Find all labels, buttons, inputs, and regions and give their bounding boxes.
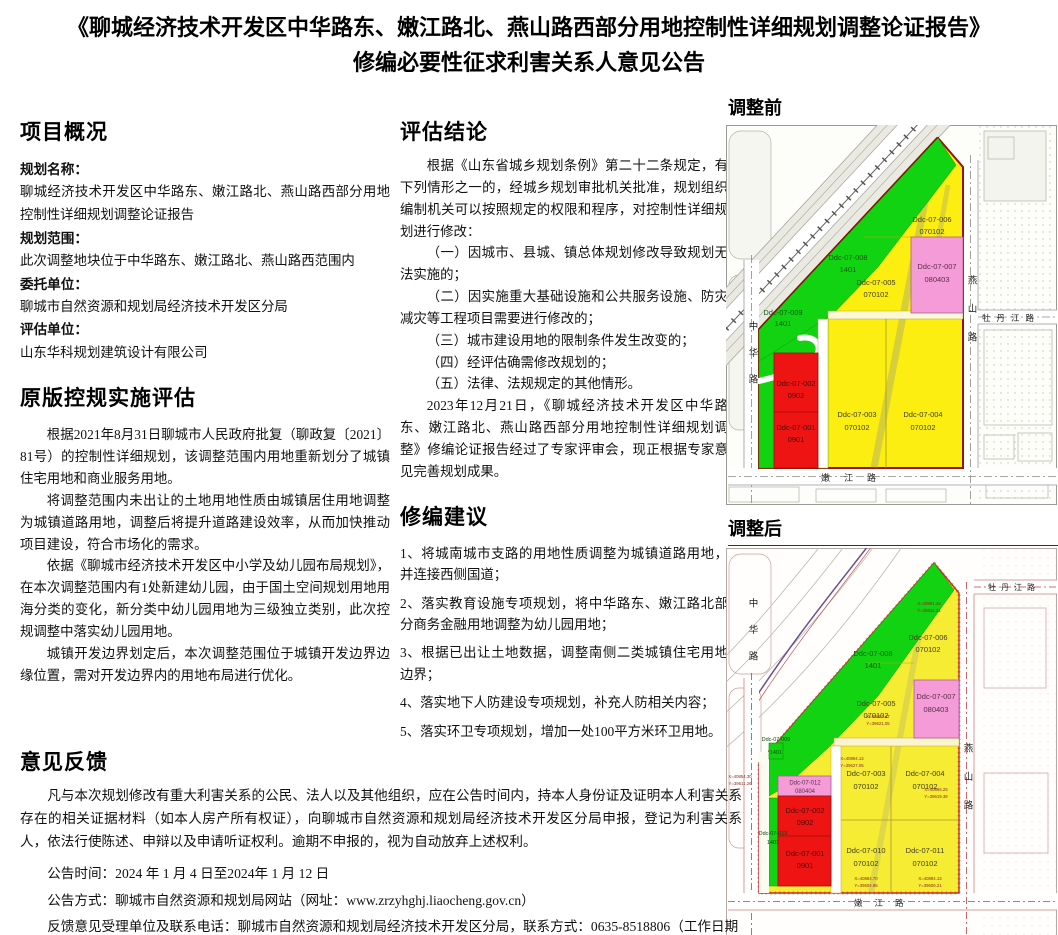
parcel-use: 070102 — [844, 423, 869, 432]
parcel-code: Ddc-07-004 — [903, 410, 942, 419]
field-label-plan-scope: 规划范围： — [20, 227, 390, 250]
feedback-heading: 意见反馈 — [20, 746, 742, 776]
coord-label: X=40865.25 — [924, 787, 948, 792]
conclusion-paragraph: 2023年12月21日，《聊城经济技术开发区中华路东、嫩江路北、燕山路西部分用地… — [400, 395, 728, 482]
road-label-nenjiang: 嫩江路 — [821, 472, 890, 483]
parcel-code: Ddc-07-002 — [776, 379, 815, 388]
notice-page: 《聊城经济技术开发区中华路东、嫩江路北、燕山路西部分用地控制性详细规划调整论证报… — [0, 0, 1058, 935]
notice-method-line: 公告方式：聊城市自然资源和规划局网站（网址：www.zrzyhghj.liaoc… — [20, 890, 742, 912]
notice-title: 《聊城经济技术开发区中华路东、嫩江路北、燕山路西部分用地控制性详细规划调整论证报… — [8, 10, 1050, 80]
section-conclusion: 评估结论 根据《山东省城乡规划条例》第二十二条规定，有下列情形之一的，经城乡规划… — [400, 116, 728, 749]
parcel-use: 0901 — [788, 435, 805, 444]
suggestion-item: 5、落实环卫专项规划，增加一处100平方米环卫用地。 — [400, 721, 728, 742]
coord-label: Y=39627.05 — [840, 763, 864, 768]
road-label-yanshan: 燕山路 — [962, 742, 974, 828]
parcel-use: 0901 — [797, 861, 814, 870]
section-maps: 调整前 — [726, 94, 1058, 935]
field-label-assessor: 评估单位： — [20, 318, 390, 341]
parcel-use: 080403 — [923, 705, 948, 714]
coord-label: X=40894.13 — [918, 876, 942, 881]
parcel-code: Ddc-07-002 — [785, 806, 824, 815]
original-assessment-paragraph: 城镇开发边界划定后，本次调整范围位于城镇开发边界边缘位置，需对开发边界内的用地布… — [20, 643, 390, 687]
road-label-nenjiang: 嫩江路 — [854, 898, 916, 908]
field-value-assessor: 山东华科规划建筑设计有限公司 — [20, 342, 390, 365]
map-before: Ddc-07-006 070102 Ddc-07-008 1401 Ddc-07… — [726, 125, 1058, 505]
original-assessment-paragraph: 根据2021年8月31日聊城市人民政府批复（聊政复〔2021〕81号）的控制性详… — [20, 424, 390, 490]
notice-period-line: 公告时间：2024 年 1 月 4 日至2024年 1 月 12 日 — [20, 863, 742, 885]
parcel-code: Ddc-07-010 — [846, 846, 885, 855]
parcel-use: 080403 — [924, 275, 949, 284]
map-before-canvas: Ddc-07-006 070102 Ddc-07-008 1401 Ddc-07… — [726, 125, 1057, 505]
project-overview-heading: 项目概况 — [20, 116, 390, 146]
feedback-paragraph: 凡与本次规划修改有重大利害关系的公民、法人以及其他组织，应在公告时间内，持本人身… — [20, 785, 742, 853]
parcel-code: Ddc-07-005 — [856, 278, 895, 287]
conclusion-paragraph: （四）经评估确需修改规划的； — [400, 352, 728, 374]
parcel-code: Ddc-07-001 — [776, 423, 815, 432]
conclusion-paragraph: 根据《山东省城乡规划条例》第二十二条规定，有下列情形之一的，经城乡规划审批机关批… — [400, 155, 728, 242]
parcel-use: 070102 — [910, 423, 935, 432]
coord-label: X=40887.47 — [866, 714, 890, 719]
parcel-use: 070102 — [915, 645, 940, 654]
edge-road-sliver — [759, 752, 769, 893]
parcel-use: 1401 — [865, 661, 882, 670]
map-before-label: 调整前 — [728, 94, 1058, 120]
suggestion-item: 4、落实地下人防建设专项规划，补充人防相关内容； — [400, 692, 728, 713]
parcel-code: Ddc-07-009 — [763, 308, 802, 317]
road-label-mudanjiang: 牡丹江路 — [982, 313, 1040, 323]
parcel-code: Ddc-07-009 — [762, 737, 791, 743]
title-line1: 《聊城经济技术开发区中华路东、嫩江路北、燕山路西部分用地控制性详细规划调整论证报… — [8, 10, 1050, 45]
parcel-code: Ddc-07-012 — [789, 781, 821, 787]
parcel-code: Ddc-07-003 — [846, 769, 885, 778]
parcel-code: Ddc-07-006 — [908, 633, 947, 642]
field-value-plan-name: 聊城经济技术开发区中华路东、嫩江路北、燕山路西部分用地控制性详细规划调整论证报告 — [20, 181, 390, 227]
parcel-001-002-shape — [774, 353, 818, 468]
parcel-use: 070102 — [863, 290, 888, 299]
title-line2: 修编必要性征求利害关系人意见公告 — [8, 45, 1050, 80]
map-after: Ddc-07-006 070102 Ddc-07-008 1401 Ddc-07… — [726, 548, 1058, 935]
field-value-plan-scope: 此次调整地块位于中华路东、嫩江路北、燕山路西范围内 — [20, 250, 390, 273]
parcel-use: 080404 — [795, 789, 816, 795]
parcel-code: Ddc-07-011 — [906, 846, 945, 855]
coord-label: Y=39604.85 — [854, 883, 878, 888]
contact-line: 反馈意见受理单位及联系电话：聊城市自然资源和规划局经济技术开发区分局，联系方式：… — [20, 916, 742, 935]
map-after-label: 调整后 — [728, 515, 1058, 546]
parcel-use: 0902 — [788, 391, 805, 400]
road-label-zhonghua: 中华路 — [747, 597, 759, 677]
road-label-mudanjiang: 牡丹江路 — [988, 582, 1040, 592]
field-value-client: 聊城市自然资源和规划局经济技术开发区分局 — [20, 296, 390, 319]
coord-label: X=40891.45 — [917, 601, 941, 606]
parcel-use: 070102 — [853, 859, 878, 868]
conclusion-paragraph: （二）因实施重大基础设施和公共服务设施、防灾减灾等工程项目需要进行修改的； — [400, 286, 728, 330]
parcel-use: 070102 — [919, 227, 944, 236]
road-label-zhonghua: 中华路 — [747, 320, 759, 400]
suggestion-item: 1、将城南城市支路的用地性质调整为城镇道路用地，并连接西侧国道； — [400, 543, 728, 586]
parcel-code: Ddc-07-008 — [828, 253, 867, 262]
parcel-code: Ddc-07-008 — [853, 649, 892, 658]
conclusion-heading: 评估结论 — [400, 116, 728, 146]
parcel-use: 1401 — [767, 840, 779, 846]
coord-label: Y=39619.38 — [924, 794, 948, 799]
road-label-yanshan: 燕山路 — [966, 274, 978, 360]
suggestion-item: 2、落实教育设施专项规划，将中华路东、嫩江路北部分商务金融用地调整为幼儿园用地； — [400, 593, 728, 636]
field-label-client: 委托单位： — [20, 273, 390, 296]
parcel-code: Ddc-07-013 — [759, 831, 788, 837]
section-feedback: 意见反馈 凡与本次规划修改有重大利害关系的公民、法人以及其他组织，应在公告时间内… — [20, 746, 742, 935]
coord-label: X=40894.13 — [840, 756, 864, 761]
original-assessment-heading: 原版控规实施评估 — [20, 382, 390, 412]
coord-label: Y=39621.05 — [866, 721, 890, 726]
conclusion-paragraph: （三）城市建设用地的限制条件发生改变的； — [400, 330, 728, 352]
field-label-plan-name: 规划名称： — [20, 158, 390, 181]
parcel-code: Ddc-07-005 — [856, 699, 895, 708]
parcel-code: Ddc-07-007 — [916, 692, 955, 701]
parcel-use: 1401 — [840, 265, 857, 274]
map-after-canvas: Ddc-07-006 070102 Ddc-07-008 1401 Ddc-07… — [726, 548, 1057, 935]
parcel-code: Ddc-07-006 — [912, 215, 951, 224]
parcel-code: Ddc-07-004 — [905, 769, 944, 778]
original-assessment-paragraph: 依据《聊城市经济技术开发区中小学及幼儿园布局规划》，在本次调整范围内有1处新建幼… — [20, 555, 390, 642]
parcel-use: 1401 — [770, 750, 782, 756]
coord-label: X=40884.70 — [854, 876, 878, 881]
parcel-code: Ddc-07-001 — [785, 849, 824, 858]
original-assessment-paragraph: 将调整范围内未出让的土地用地性质由城镇居住用地调整为城镇道路用地，调整后将提升道… — [20, 490, 390, 556]
parcel-code: Ddc-07-003 — [837, 410, 876, 419]
coord-label: Y=39624.31 — [917, 608, 941, 613]
parcel-use: 1401 — [775, 319, 792, 328]
conclusion-paragraph: （五）法律、法规规定的其他情形。 — [400, 373, 728, 395]
coord-label: Y=39606.21 — [918, 883, 942, 888]
parcel-code: Ddc-07-007 — [917, 262, 956, 271]
parcel-use: 070102 — [912, 859, 937, 868]
parcel-use: 070102 — [853, 782, 878, 791]
parcel-use: 0902 — [797, 818, 814, 827]
section-project-overview: 项目概况 规划名称： 聊城经济技术开发区中华路东、嫩江路北、燕山路西部分用地控制… — [20, 116, 390, 686]
suggestion-item: 3、根据已出让土地数据，调整南侧二类城镇住宅用地边界； — [400, 642, 728, 685]
conclusion-paragraph: （一）因城市、县城、镇总体规划修改导致规划无法实施的； — [400, 242, 728, 286]
suggestions-heading: 修编建议 — [400, 501, 728, 531]
